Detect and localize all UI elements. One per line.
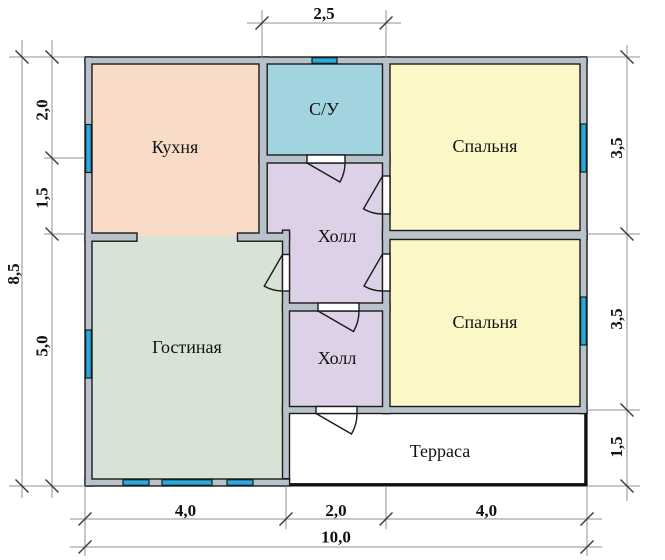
svg-text:1,5: 1,5: [607, 436, 626, 457]
svg-text:3,5: 3,5: [607, 137, 626, 158]
svg-text:Терраса: Терраса: [410, 441, 471, 461]
svg-text:4,0: 4,0: [476, 501, 497, 520]
svg-text:Спальня: Спальня: [453, 312, 518, 332]
svg-text:3,5: 3,5: [607, 308, 626, 329]
svg-text:Гостиная: Гостиная: [152, 337, 222, 357]
svg-text:Холл: Холл: [318, 226, 357, 246]
svg-text:2,5: 2,5: [313, 4, 334, 23]
svg-text:2,0: 2,0: [33, 99, 52, 120]
svg-text:С/У: С/У: [309, 99, 339, 119]
svg-text:10,0: 10,0: [321, 528, 351, 547]
svg-text:8,5: 8,5: [4, 263, 23, 284]
svg-text:Холл: Холл: [318, 348, 357, 368]
svg-text:Кухня: Кухня: [152, 137, 199, 157]
svg-text:Спальня: Спальня: [453, 136, 518, 156]
svg-text:2,0: 2,0: [325, 501, 346, 520]
svg-text:1,5: 1,5: [33, 187, 52, 208]
svg-text:5,0: 5,0: [33, 335, 52, 356]
svg-text:4,0: 4,0: [175, 501, 196, 520]
